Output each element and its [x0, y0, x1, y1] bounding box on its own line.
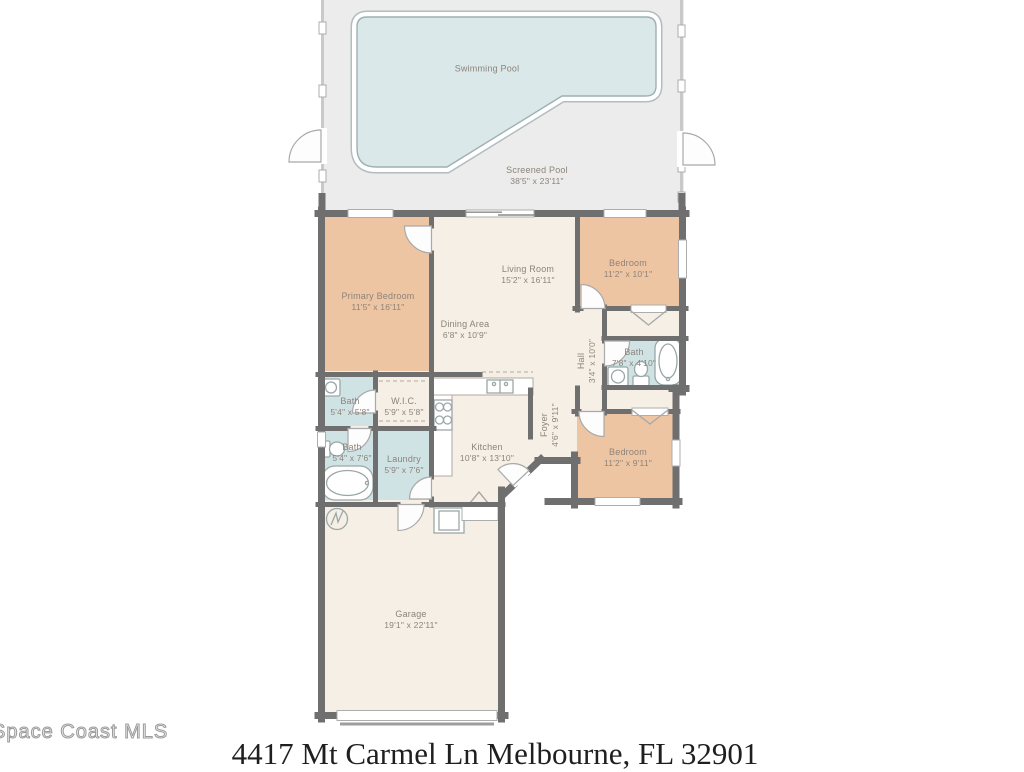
screen-door-left — [289, 130, 321, 162]
bath-hall-tub-icon — [655, 339, 681, 385]
room-label-foyer: Foyer4'6" x 9'11" — [539, 403, 561, 447]
sliding-door — [466, 210, 534, 217]
room-label-bedroom-1: Bedroom11'2" x 10'1" — [604, 258, 653, 280]
screen-door-right — [683, 133, 715, 165]
room-label-kitchen: Kitchen10'8" x 13'10" — [460, 442, 514, 464]
hvac-unit-icon — [434, 508, 464, 533]
room-label-wic: W.I.C.5'9" x 5'8" — [384, 396, 423, 418]
room-label-primary-bedroom: Primary Bedroom11'5" x 16'11" — [341, 291, 414, 313]
mls-watermark: Space Coast MLS — [0, 721, 168, 744]
property-address: 4417 Mt Carmel Ln Melbourne, FL 32901 — [232, 736, 759, 772]
room-label-bedroom-2: Bedroom11'2" x 9'11" — [604, 447, 652, 469]
room-label-screened-pool: Screened Pool38'5" x 23'11" — [506, 165, 568, 187]
screened-pool-area — [289, 0, 715, 212]
room-label-bath-2: Bath5'4" x 7'6" — [332, 442, 371, 464]
bath-hall-sink-icon — [608, 367, 628, 386]
entry-step — [462, 507, 498, 521]
room-label-bath-hall: Bath7'8" x 4'10" — [612, 347, 656, 369]
room-label-living-room: Living Room15'2" x 16'11" — [501, 264, 555, 286]
floor-plan-page: { "footer": { "address": "4417 Mt Carmel… — [0, 0, 1024, 768]
garage-door — [337, 711, 497, 725]
room-label-bath-primary: Bath5'4" x 5'8" — [330, 396, 369, 418]
floor-plan-drawing — [0, 0, 1024, 768]
room-label-hall: Hall3'4" x 10'0" — [576, 339, 598, 383]
room-label-garage: Garage19'1" x 22'11" — [384, 609, 438, 631]
bath-2-tub-icon — [322, 466, 373, 500]
room-label-swimming-pool: Swimming Pool — [455, 64, 520, 75]
room-label-laundry: Laundry5'9" x 7'6" — [384, 454, 423, 476]
room-label-dining-area: Dining Area6'8" x 10'9" — [441, 319, 490, 341]
